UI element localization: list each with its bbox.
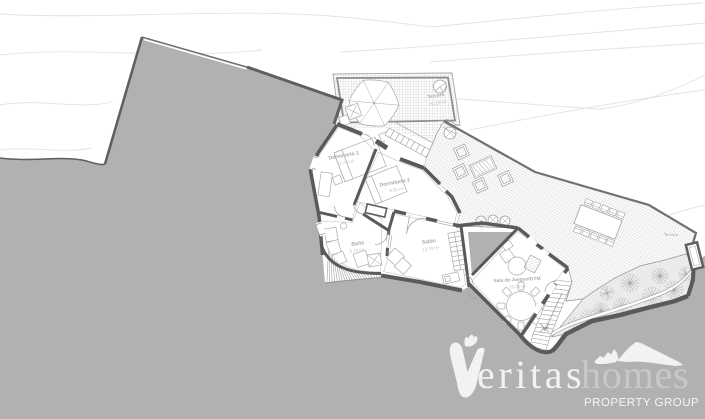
svg-text:Terraza: Terraza [664, 232, 679, 237]
svg-text:eritas: eritas [477, 352, 585, 397]
svg-text:PROPERTY GROUP: PROPERTY GROUP [584, 397, 699, 409]
svg-text:28.05 m²: 28.05 m² [509, 284, 527, 290]
svg-text:homes: homes [581, 352, 689, 397]
